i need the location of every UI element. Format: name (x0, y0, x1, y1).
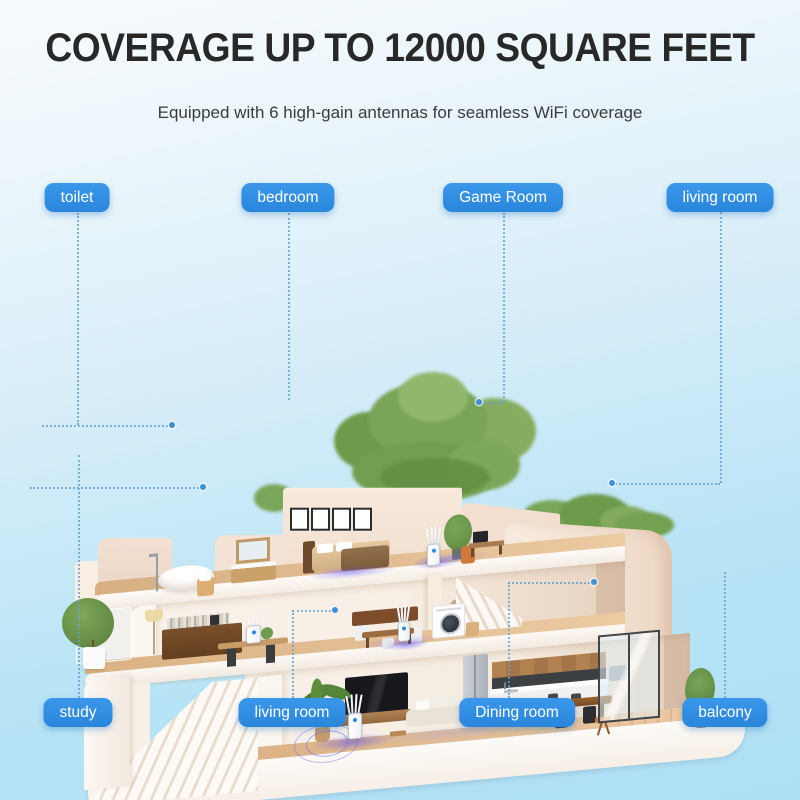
middle-right-shadow (596, 561, 625, 615)
connector-gameroom-v (503, 213, 505, 402)
connector-livingroom-top-v (720, 212, 722, 483)
label-toilet: toilet (45, 183, 110, 212)
connector-study-h (30, 487, 203, 489)
pillow (317, 543, 333, 553)
connector-dot (476, 399, 482, 405)
washer-door (440, 612, 461, 635)
connector-diningroom-v (508, 582, 510, 698)
towel (199, 574, 211, 581)
stair-parapet (84, 674, 130, 790)
page-title: COVERAGE UP TO 12000 SQUARE FEET (28, 26, 772, 71)
connector-balcony-v (724, 572, 726, 698)
extender-led (252, 630, 256, 634)
plant-pot (83, 647, 105, 669)
connector-livingroom-top-h (612, 483, 720, 485)
extender-led (353, 718, 357, 722)
picture-frame (311, 508, 330, 531)
floor-lamp-shade (145, 609, 163, 623)
connector-gameroom-h (479, 402, 503, 404)
connector-dot (591, 579, 597, 585)
shower-pole (156, 554, 158, 591)
washing-machine (432, 603, 465, 639)
page: COVERAGE UP TO 12000 SQUARE FEET Equippe… (0, 0, 800, 800)
vanity-mirror (236, 537, 270, 564)
connector-livingroom-bottom-v (292, 610, 294, 698)
sink (504, 689, 518, 693)
picture-frame (332, 508, 351, 531)
connector-toilet-h (42, 425, 172, 427)
faucet (504, 682, 506, 689)
picture-frame (290, 508, 309, 531)
connector-bedroom-v (288, 213, 290, 400)
laundry-basket (466, 622, 479, 637)
glass-doors (598, 630, 660, 724)
label-game-room: Game Room (443, 183, 563, 212)
connector-dot (609, 480, 615, 486)
label-balcony: balcony (682, 698, 767, 727)
picture-frame (353, 508, 372, 531)
label-dining-room: Dining room (459, 698, 575, 727)
label-bedroom: bedroom (241, 183, 334, 212)
label-living-room-top: living room (667, 183, 774, 212)
extender-led (432, 549, 436, 553)
house (0, 83, 800, 717)
gaming-monitor (473, 531, 488, 543)
connector-dot (169, 422, 175, 428)
connector-dot (200, 484, 206, 490)
label-living-room-bottom: living room (239, 698, 346, 727)
connector-study-v (78, 455, 80, 698)
label-study: study (43, 698, 112, 727)
house-scene (0, 150, 800, 710)
connector-toilet-v (77, 213, 79, 425)
extender-led (402, 626, 406, 630)
connector-dot (332, 607, 338, 613)
pillow (416, 700, 429, 710)
connector-diningroom-h (508, 582, 594, 584)
connector-livingroom-bottom-h (292, 610, 335, 612)
floor-lamp-pole (153, 622, 155, 655)
